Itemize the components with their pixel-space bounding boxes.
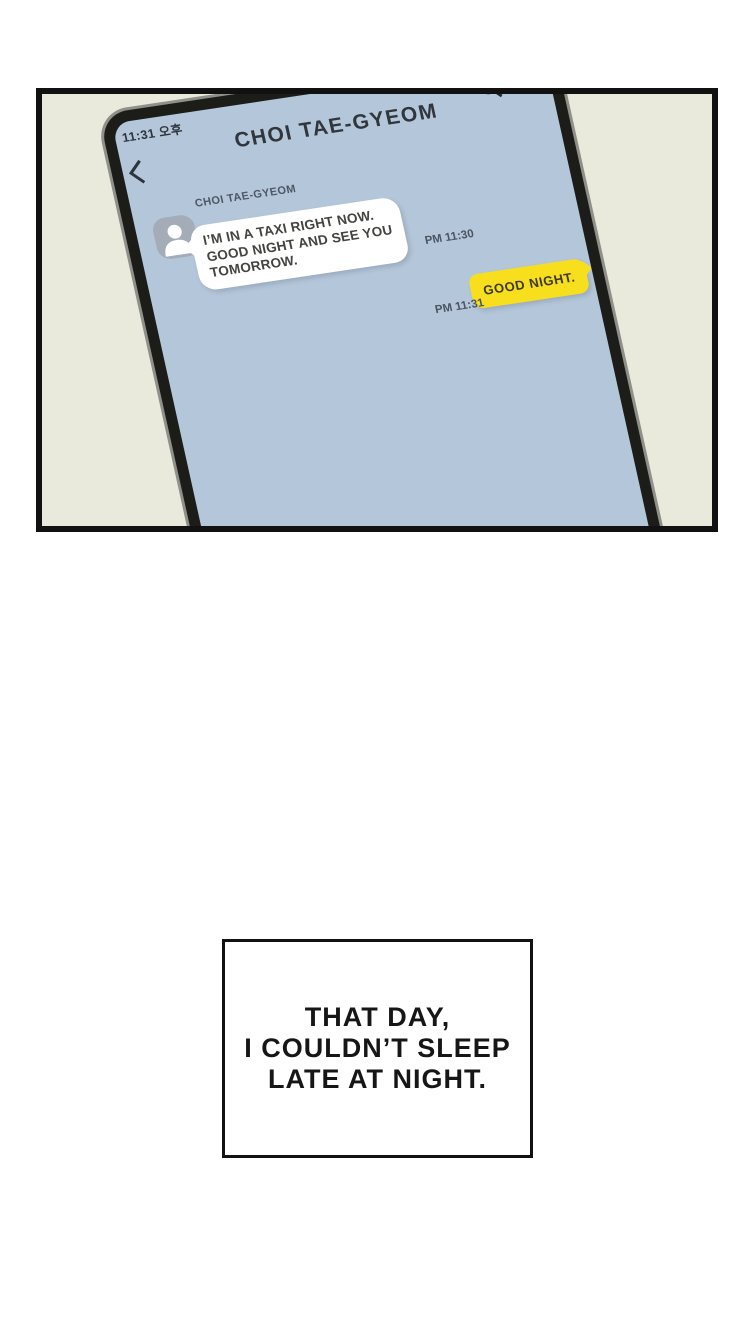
incoming-message-bubble: I’M IN A TAXI RIGHT NOW. GOOD NIGHT AND … bbox=[188, 196, 411, 291]
narration-line: THAT DAY, bbox=[244, 1002, 511, 1033]
outgoing-timestamp: PM 11:31 bbox=[434, 297, 485, 316]
phone: 11:31 오후 CHOI TAE-GYEOM bbox=[95, 88, 694, 532]
narration-line: I COULDN’T SLEEP bbox=[244, 1033, 511, 1064]
chat-screen: 11:31 오후 CHOI TAE-GYEOM bbox=[112, 88, 678, 532]
narration-line: LATE AT NIGHT. bbox=[244, 1064, 511, 1095]
comic-panel: 11:31 오후 CHOI TAE-GYEOM bbox=[36, 88, 718, 532]
outgoing-message-bubble: GOOD NIGHT. bbox=[468, 258, 591, 309]
sender-name: CHOI TAE-GYEOM bbox=[194, 183, 297, 210]
narration-text: THAT DAY, I COULDN’T SLEEP LATE AT NIGHT… bbox=[244, 1002, 511, 1095]
phone-bezel: 11:31 오후 CHOI TAE-GYEOM bbox=[99, 88, 691, 532]
incoming-timestamp: PM 11:30 bbox=[424, 228, 475, 247]
comic-page: 11:31 오후 CHOI TAE-GYEOM bbox=[0, 0, 750, 1334]
narration-box: THAT DAY, I COULDN’T SLEEP LATE AT NIGHT… bbox=[222, 939, 533, 1158]
